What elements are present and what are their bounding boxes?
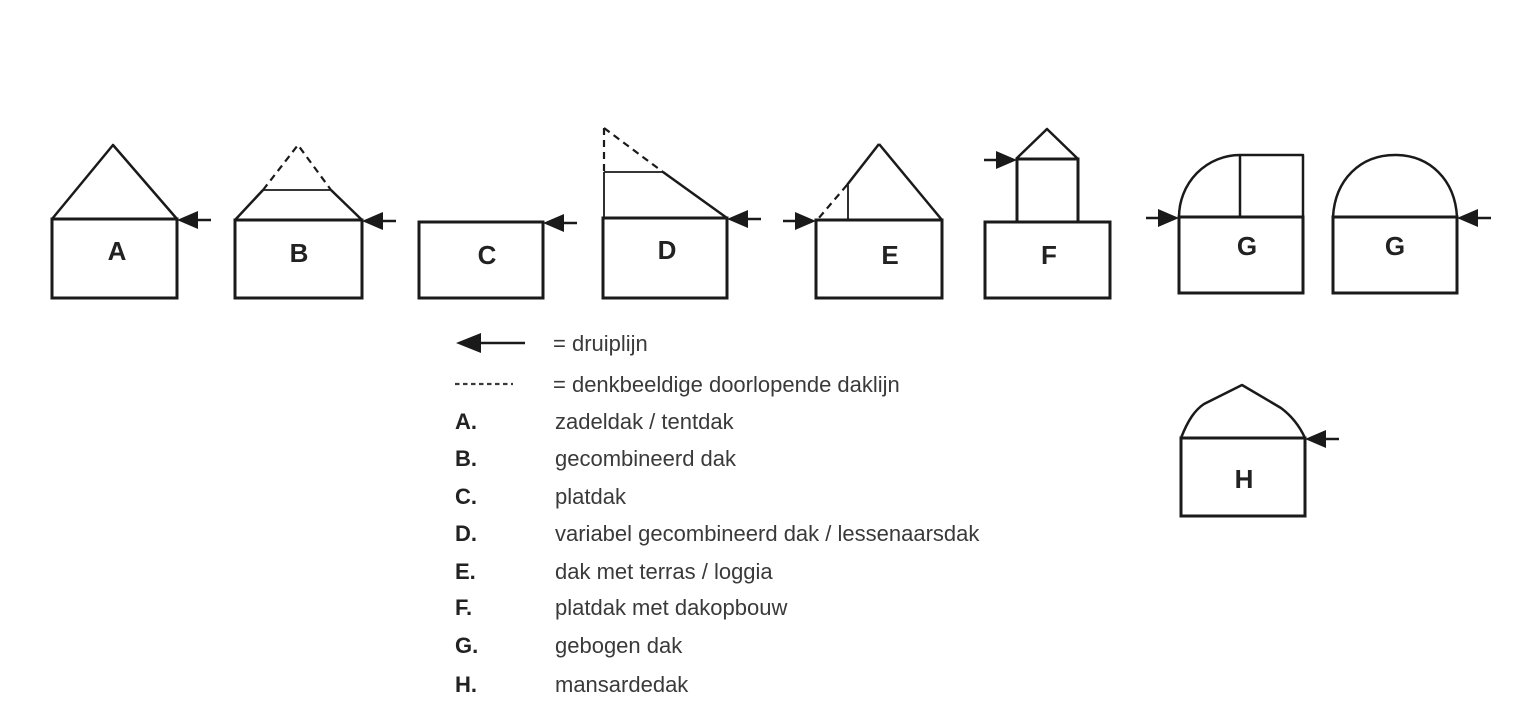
legend-item-e: E. dak met terras / loggia — [455, 559, 773, 584]
house-d-label: D — [658, 235, 677, 265]
legend-key: A. — [455, 409, 477, 434]
druiplijn-arrow-icon — [1457, 209, 1491, 227]
diagram-canvas: A B C D — [0, 0, 1539, 723]
house-g1-gebogen-dak: G — [1146, 155, 1303, 293]
legend-label: gecombineerd dak — [555, 446, 737, 471]
legend-item-d: D. variabel gecombineerd dak / lessenaar… — [455, 521, 980, 546]
house-a-label: A — [108, 236, 127, 266]
house-g2-label: G — [1385, 231, 1405, 261]
druiplijn-arrow-icon — [1146, 209, 1179, 227]
legend-label: variabel gecombineerd dak / lessenaarsda… — [555, 521, 980, 546]
house-g2-gebogen-dak: G — [1333, 155, 1491, 293]
druiplijn-arrow-icon — [727, 210, 761, 228]
druiplijn-arrow-icon — [1305, 430, 1339, 448]
house-d-lessenaarsdak: D — [603, 128, 761, 298]
house-h-mansardedak: H — [1181, 385, 1339, 516]
house-a-zadeldak: A — [52, 145, 211, 298]
house-e-label: E — [881, 240, 898, 270]
legend-key: F. — [455, 595, 472, 620]
legend-key: D. — [455, 521, 477, 546]
house-b-gecombineerd-dak: B — [235, 145, 396, 298]
legend-key: G. — [455, 633, 478, 658]
legend-key: H. — [455, 672, 477, 697]
legend-item-h: H. mansardedak — [455, 672, 689, 697]
legend-druiplijn-label: = druiplijn — [553, 331, 648, 356]
house-c-platdak: C — [419, 214, 577, 298]
house-c-label: C — [478, 240, 497, 270]
legend: = druiplijn = denkbeeldige doorlopende d… — [455, 331, 980, 697]
legend-label: mansardedak — [555, 672, 689, 697]
druiplijn-arrow-icon — [984, 151, 1017, 169]
roof-types-diagram: A B C D — [0, 0, 1539, 723]
legend-item-c: C. platdak — [455, 484, 627, 509]
legend-key: E. — [455, 559, 476, 584]
druiplijn-arrow-icon — [456, 333, 525, 353]
house-h-label: H — [1235, 464, 1254, 494]
house-f-label: F — [1041, 240, 1057, 270]
legend-key: C. — [455, 484, 477, 509]
druiplijn-arrow-icon — [177, 211, 211, 229]
legend-label: gebogen dak — [555, 633, 683, 658]
legend-item-a: A. zadeldak / tentdak — [455, 409, 735, 434]
legend-key: B. — [455, 446, 477, 471]
druiplijn-arrow-icon — [543, 214, 577, 232]
house-f-platdak-met-dakopbouw: F — [984, 129, 1110, 298]
legend-item-f: F. platdak met dakopbouw — [455, 595, 787, 620]
house-g1-label: G — [1237, 231, 1257, 261]
druiplijn-arrow-icon — [362, 212, 396, 230]
legend-label: zadeldak / tentdak — [555, 409, 735, 434]
house-e-dak-met-terras: E — [783, 144, 942, 298]
legend-item-g: G. gebogen dak — [455, 633, 683, 658]
legend-label: platdak — [555, 484, 627, 509]
legend-daklijn-label: = denkbeeldige doorlopende daklijn — [553, 372, 900, 397]
druiplijn-arrow-icon — [783, 212, 816, 230]
house-b-label: B — [290, 238, 309, 268]
legend-item-b: B. gecombineerd dak — [455, 446, 737, 471]
legend-label: dak met terras / loggia — [555, 559, 773, 584]
legend-label: platdak met dakopbouw — [555, 595, 787, 620]
